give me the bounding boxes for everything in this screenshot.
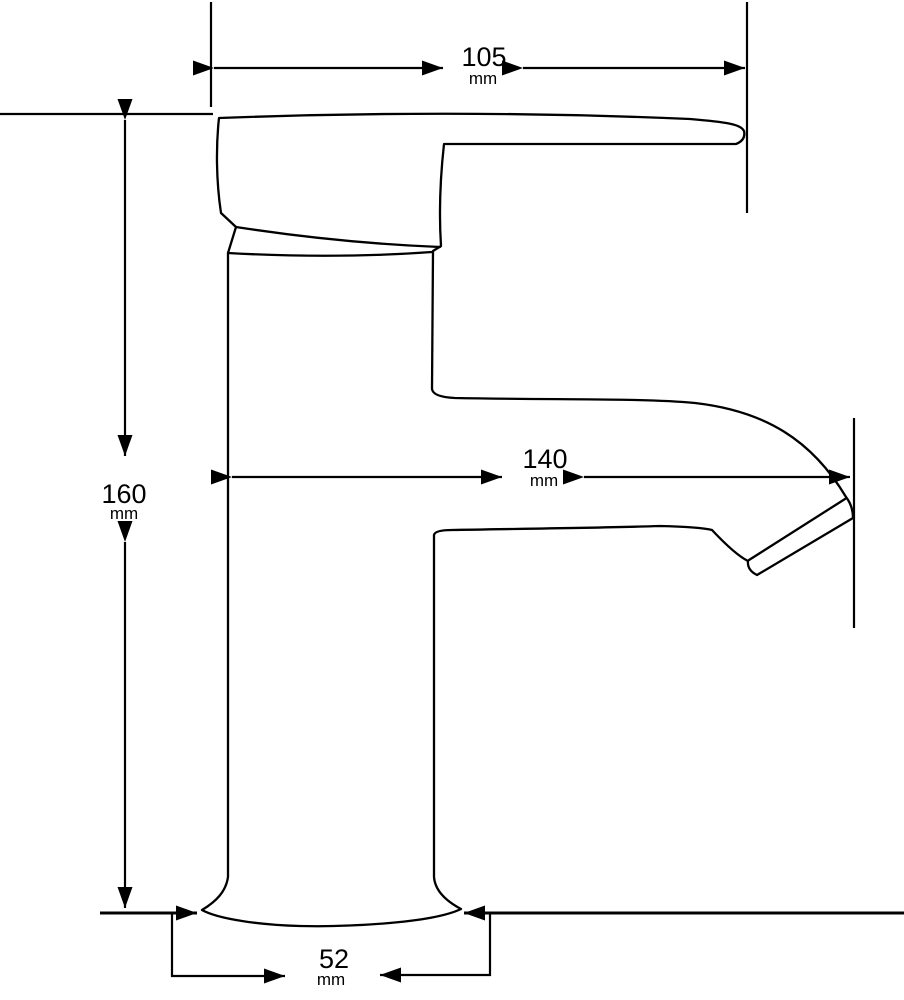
dim-value-140: 140 <box>522 444 567 474</box>
dim-value-105: 105 <box>461 42 506 72</box>
dim-unit-140: mm <box>530 471 558 490</box>
dimension-spout-reach: 140 mm <box>232 444 850 490</box>
dimension-top-width: 105 mm <box>214 42 745 88</box>
handle-collar-bottom-line <box>228 252 432 256</box>
technical-drawing-canvas: 105 mm 160 mm 140 mm 52 mm <box>0 0 904 1000</box>
reference-lines <box>0 2 904 913</box>
dim-leader-52-left <box>172 913 285 976</box>
dimension-left-height: 160 mm <box>101 120 146 908</box>
dim-unit-160: mm <box>110 504 138 523</box>
handle-collar-top-line <box>236 227 440 247</box>
faucet-dimension-diagram: 105 mm 160 mm 140 mm 52 mm <box>0 0 904 1000</box>
dim-unit-52: mm <box>317 970 345 989</box>
dimension-base-width: 52 mm <box>172 912 490 989</box>
dim-unit-105: mm <box>469 69 497 88</box>
faucet-outline <box>202 114 853 926</box>
